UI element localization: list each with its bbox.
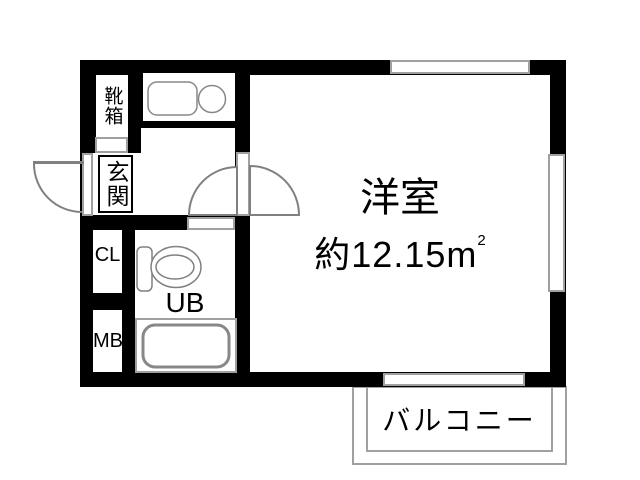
shoe-box-label: 靴箱 <box>96 75 128 137</box>
kitchen-corridor-floor <box>141 128 235 215</box>
closet-label: CL <box>93 245 122 265</box>
entrance-door-swing-arc <box>34 164 82 212</box>
balcony-label: バルコニー <box>366 407 553 435</box>
balcony-sliding-door <box>383 373 525 386</box>
area-value: 約12.15 <box>314 234 446 275</box>
unit-bath-label: UB <box>135 289 235 317</box>
meter-box-label: MB <box>93 331 122 351</box>
floorplan: 玄関 靴箱 CL MB UB 洋室 約12.15m2 バルコニー <box>0 0 640 480</box>
area-exponent: 2 <box>477 232 485 249</box>
entrance-label: 玄関 <box>98 155 133 213</box>
main-room-area: 約12.15m2 <box>250 218 550 278</box>
entrance-door-panel <box>82 153 93 216</box>
area-unit: m <box>446 234 477 275</box>
kitchen-counter-area <box>143 73 235 121</box>
shoe-box-door <box>95 137 128 153</box>
unit-bath-door <box>187 217 235 230</box>
window-top <box>390 60 530 74</box>
main-room-label: 洋室 約12.15m2 <box>250 178 550 278</box>
window-right <box>548 154 565 292</box>
room-door-leaf <box>236 152 250 216</box>
main-room-name: 洋室 <box>250 178 550 218</box>
